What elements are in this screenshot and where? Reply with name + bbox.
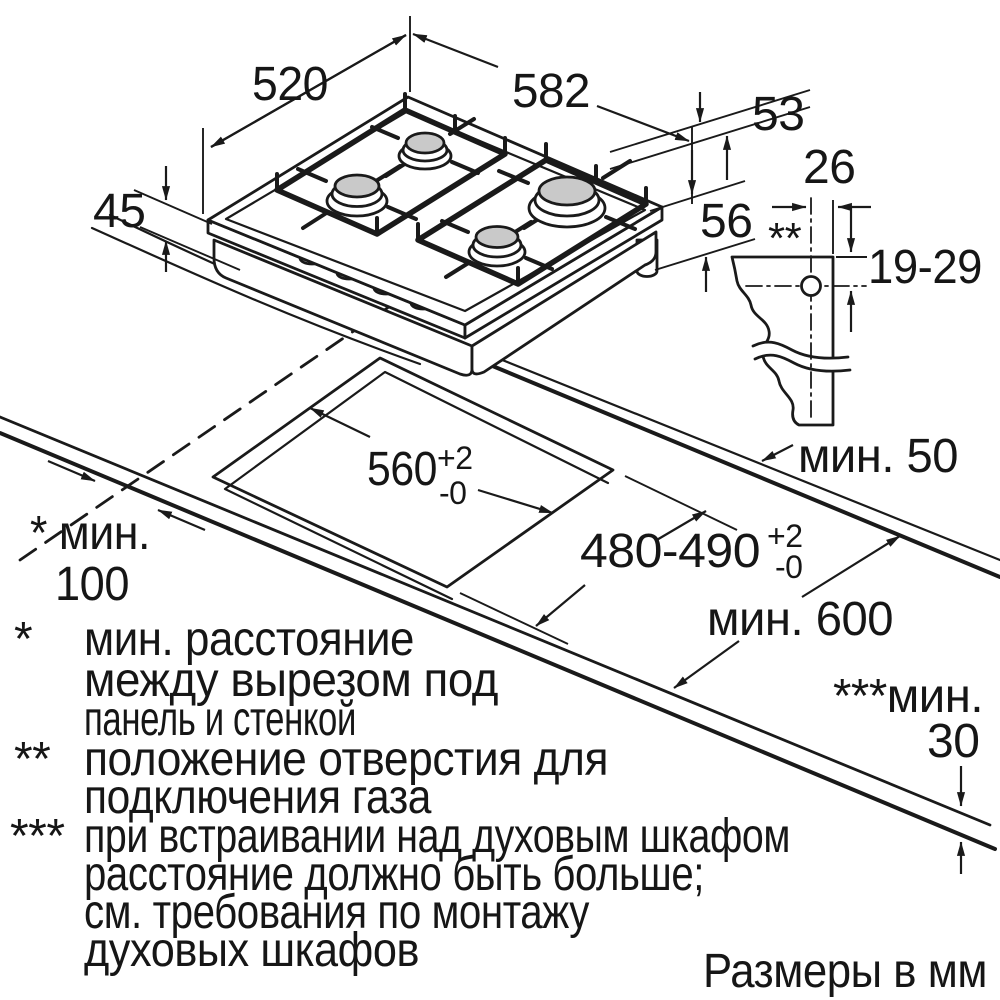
dim-label-rim-height: 53	[752, 88, 804, 141]
dim-label-min-side-clearance: * мин.	[30, 507, 150, 560]
units-caption: Размеры в мм	[703, 945, 987, 998]
dim-label-cutout-width: 560	[367, 443, 437, 496]
dim-label-cutout-width-tol-minus: -0	[439, 475, 466, 511]
dim-label-gas-hole-height: 19-29	[868, 241, 982, 294]
installation-diagram: 520 582 53 56 45	[0, 0, 1000, 1000]
dim-label-cutout-depth-tol-minus: -0	[775, 549, 802, 585]
dim-label-cutout-depth: 480-490	[580, 525, 760, 578]
dimension-gas-offset-26: 26 **	[768, 141, 871, 263]
dim-label-gas-offset: 26	[803, 141, 855, 194]
dim-value-min-panel-thickness: 30	[927, 715, 979, 768]
footnotes: * мин. расстояние между вырезом под пане…	[10, 613, 790, 977]
footnote-triple-star-line: духовых шкафов	[84, 924, 419, 977]
burner	[327, 175, 387, 216]
footnote-star-bullet: *	[14, 613, 32, 666]
gas-connection-detail: 26 ** 19-29	[732, 141, 982, 425]
installation-diagram-canvas: 520 582 53 56 45	[0, 0, 1000, 1000]
gas-connection-hole	[802, 277, 821, 296]
dim-label-min-worktop-depth: мин. 600	[707, 593, 893, 646]
dim-label-hob-height: 45	[93, 185, 145, 238]
gas-hole-marker: **	[768, 214, 802, 263]
footnote-double-star-bullet: **	[14, 733, 50, 786]
dimension-rim-height-53: 53	[610, 88, 810, 180]
dimension-gas-hole-height-19-29: 19-29	[836, 206, 982, 332]
footnote-triple-star-bullet: ***	[10, 810, 65, 863]
dim-label-cutout-width-tol-plus: +2	[437, 440, 472, 476]
dim-label-min-rear-clearance: мин. 50	[798, 430, 958, 483]
burner	[529, 177, 605, 227]
dim-label-hob-depth: 520	[252, 58, 328, 111]
dimension-min-panel-thickness-30: ***мин. 30	[833, 670, 983, 874]
dim-label-hob-width: 582	[512, 65, 590, 118]
hob-drawing	[208, 94, 662, 375]
burner	[399, 133, 451, 169]
dim-value-min-side-clearance: 100	[55, 558, 129, 611]
dim-label-body-drop: 56	[700, 195, 752, 248]
burner	[469, 227, 525, 267]
